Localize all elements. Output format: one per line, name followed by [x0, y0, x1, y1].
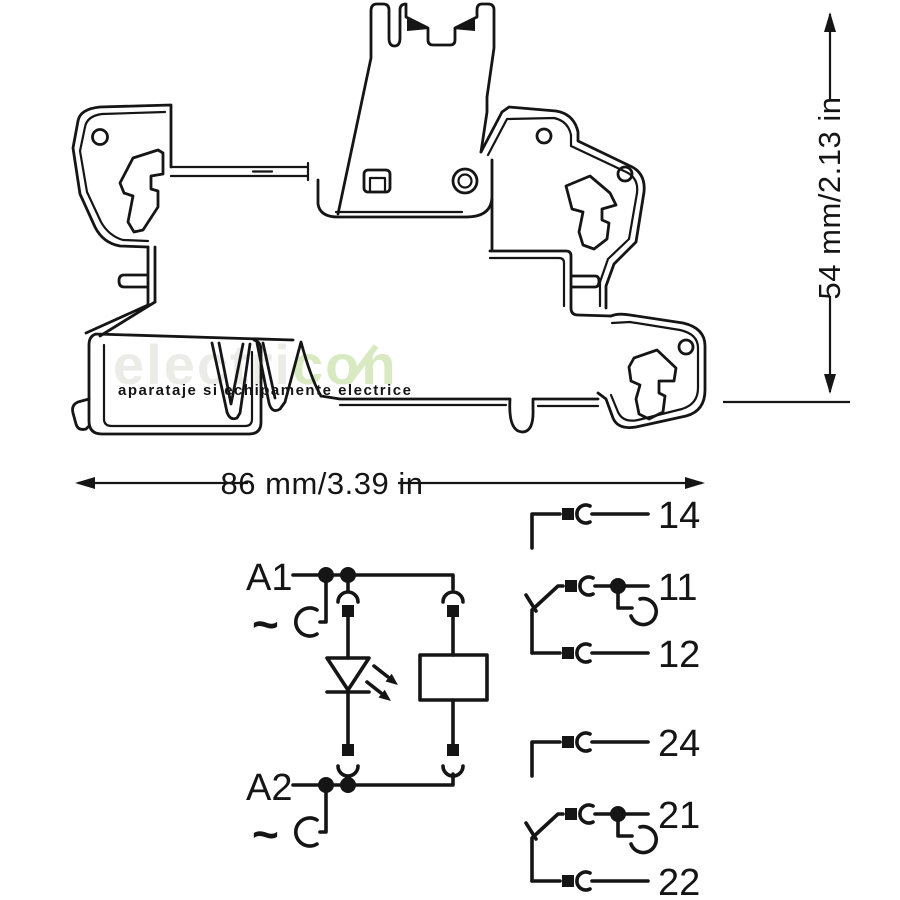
cg2-com-dot — [610, 806, 626, 822]
width-dimension: 86 mm/3.39 in — [75, 466, 705, 501]
relay-coil-symbol — [420, 655, 487, 700]
right-foot-latch — [629, 350, 676, 419]
a2-junction-dot — [318, 777, 334, 793]
cg2-com-pin — [565, 808, 577, 820]
right-block-latch — [566, 176, 616, 249]
cg1-com-pin — [565, 580, 577, 592]
tower-latch-triangle-left — [407, 19, 429, 31]
tower-latch-triangle-right — [453, 19, 475, 31]
right-block-inner-wall — [488, 118, 637, 306]
a1-junction-dot — [318, 567, 334, 583]
cg1-nc-arc — [577, 644, 590, 662]
led-triangle-icon — [327, 658, 369, 690]
terminal-label-a1: A1 — [246, 557, 292, 599]
height-dim-arrow-down-icon — [824, 374, 836, 394]
terminal-label-21: 21 — [658, 795, 700, 837]
right-mid-inner — [490, 258, 564, 306]
cg2-nc-arc — [577, 872, 590, 890]
left-stem — [119, 247, 155, 305]
contact-group-2: 24 21 22 — [526, 723, 700, 900]
cg2-nc-pin — [562, 875, 574, 887]
width-dim-label: 86 mm/3.39 in — [221, 466, 424, 501]
right-foot-hole — [679, 340, 693, 354]
bottom-edge-inner — [340, 405, 598, 406]
slot-feature-inner — [370, 178, 385, 192]
cg1-pole-wire — [532, 586, 563, 653]
bottom-edge — [321, 396, 598, 432]
cg2-pole-wire — [532, 814, 563, 881]
cg2-com-socket-arc — [631, 827, 656, 853]
cg2-no-branch — [532, 742, 560, 776]
left-stem-diagonals — [86, 302, 155, 336]
cg1-no-branch — [532, 514, 560, 548]
a1-junction-dot2 — [340, 567, 356, 583]
right-block-hole-upper — [537, 129, 551, 143]
terminal-label-24: 24 — [658, 723, 700, 765]
height-dim-label: 54 mm/2.13 in — [812, 97, 847, 300]
terminal-label-14: 14 — [658, 495, 700, 537]
a2-socket-drop — [320, 793, 326, 832]
led-plug-pin-bottom — [342, 744, 354, 756]
cg1-no-pin — [562, 508, 574, 520]
terminal-label-22: 22 — [658, 862, 700, 900]
right-foot-outline — [598, 314, 705, 427]
coil-circuit: A1 ~ A2 ~ — [246, 557, 487, 860]
cg1-com-socket-drop — [618, 594, 632, 608]
left-block-latch — [120, 150, 163, 232]
rivet-inner-circle — [459, 175, 472, 188]
drawing-svg: electricon aparataje si echipamente elec… — [0, 0, 900, 900]
cg1-no-arc — [577, 505, 590, 523]
width-dim-arrow-left-icon — [75, 477, 95, 489]
led-plug-arc-bottom — [338, 766, 358, 776]
rivet-outer-circle — [453, 169, 477, 193]
terminal-label-12: 12 — [658, 634, 700, 676]
cg1-com-arc — [580, 577, 593, 595]
width-dim-arrow-right-icon — [685, 477, 705, 489]
cg1-com-socket-arc — [631, 599, 656, 625]
cg2-no-arc — [577, 733, 590, 751]
led-light-arrow-1 — [374, 666, 388, 677]
right-block-outline — [481, 107, 644, 308]
terminal-label-11: 11 — [658, 567, 697, 609]
relay-dimension-drawing: electricon aparataje si echipamente elec… — [0, 0, 900, 900]
a2-junction-dot2 — [340, 777, 356, 793]
ac-symbol-a2: ~ — [252, 808, 279, 860]
cg2-com-arc — [580, 805, 593, 823]
cg1-nc-pin — [562, 647, 574, 659]
a1-wire — [293, 575, 453, 589]
height-dimension: 54 mm/2.13 in — [723, 12, 850, 402]
a2-wire — [293, 774, 453, 785]
channel-lines — [171, 163, 308, 180]
contact-group-1: 14 11 12 — [526, 495, 700, 676]
cg1-com-dot — [610, 578, 626, 594]
a2-socket-arc — [296, 818, 317, 846]
ac-symbol-a1: ~ — [252, 598, 279, 650]
right-foot-inner-wall — [611, 322, 698, 421]
terminal-label-a2: A2 — [246, 767, 292, 809]
coil-plug-pin-bottom — [447, 744, 459, 756]
cg2-com-socket-drop — [618, 822, 632, 836]
left-foot-hook — [73, 399, 89, 429]
a1-socket-arc — [296, 608, 317, 636]
coil-plug-arc-top — [443, 592, 463, 602]
cg2-no-pin — [562, 736, 574, 748]
led-plug-arc-top — [338, 592, 358, 602]
height-dim-arrow-up-icon — [824, 12, 836, 32]
left-block-hole — [93, 130, 108, 145]
a1-socket-drop — [320, 583, 326, 622]
